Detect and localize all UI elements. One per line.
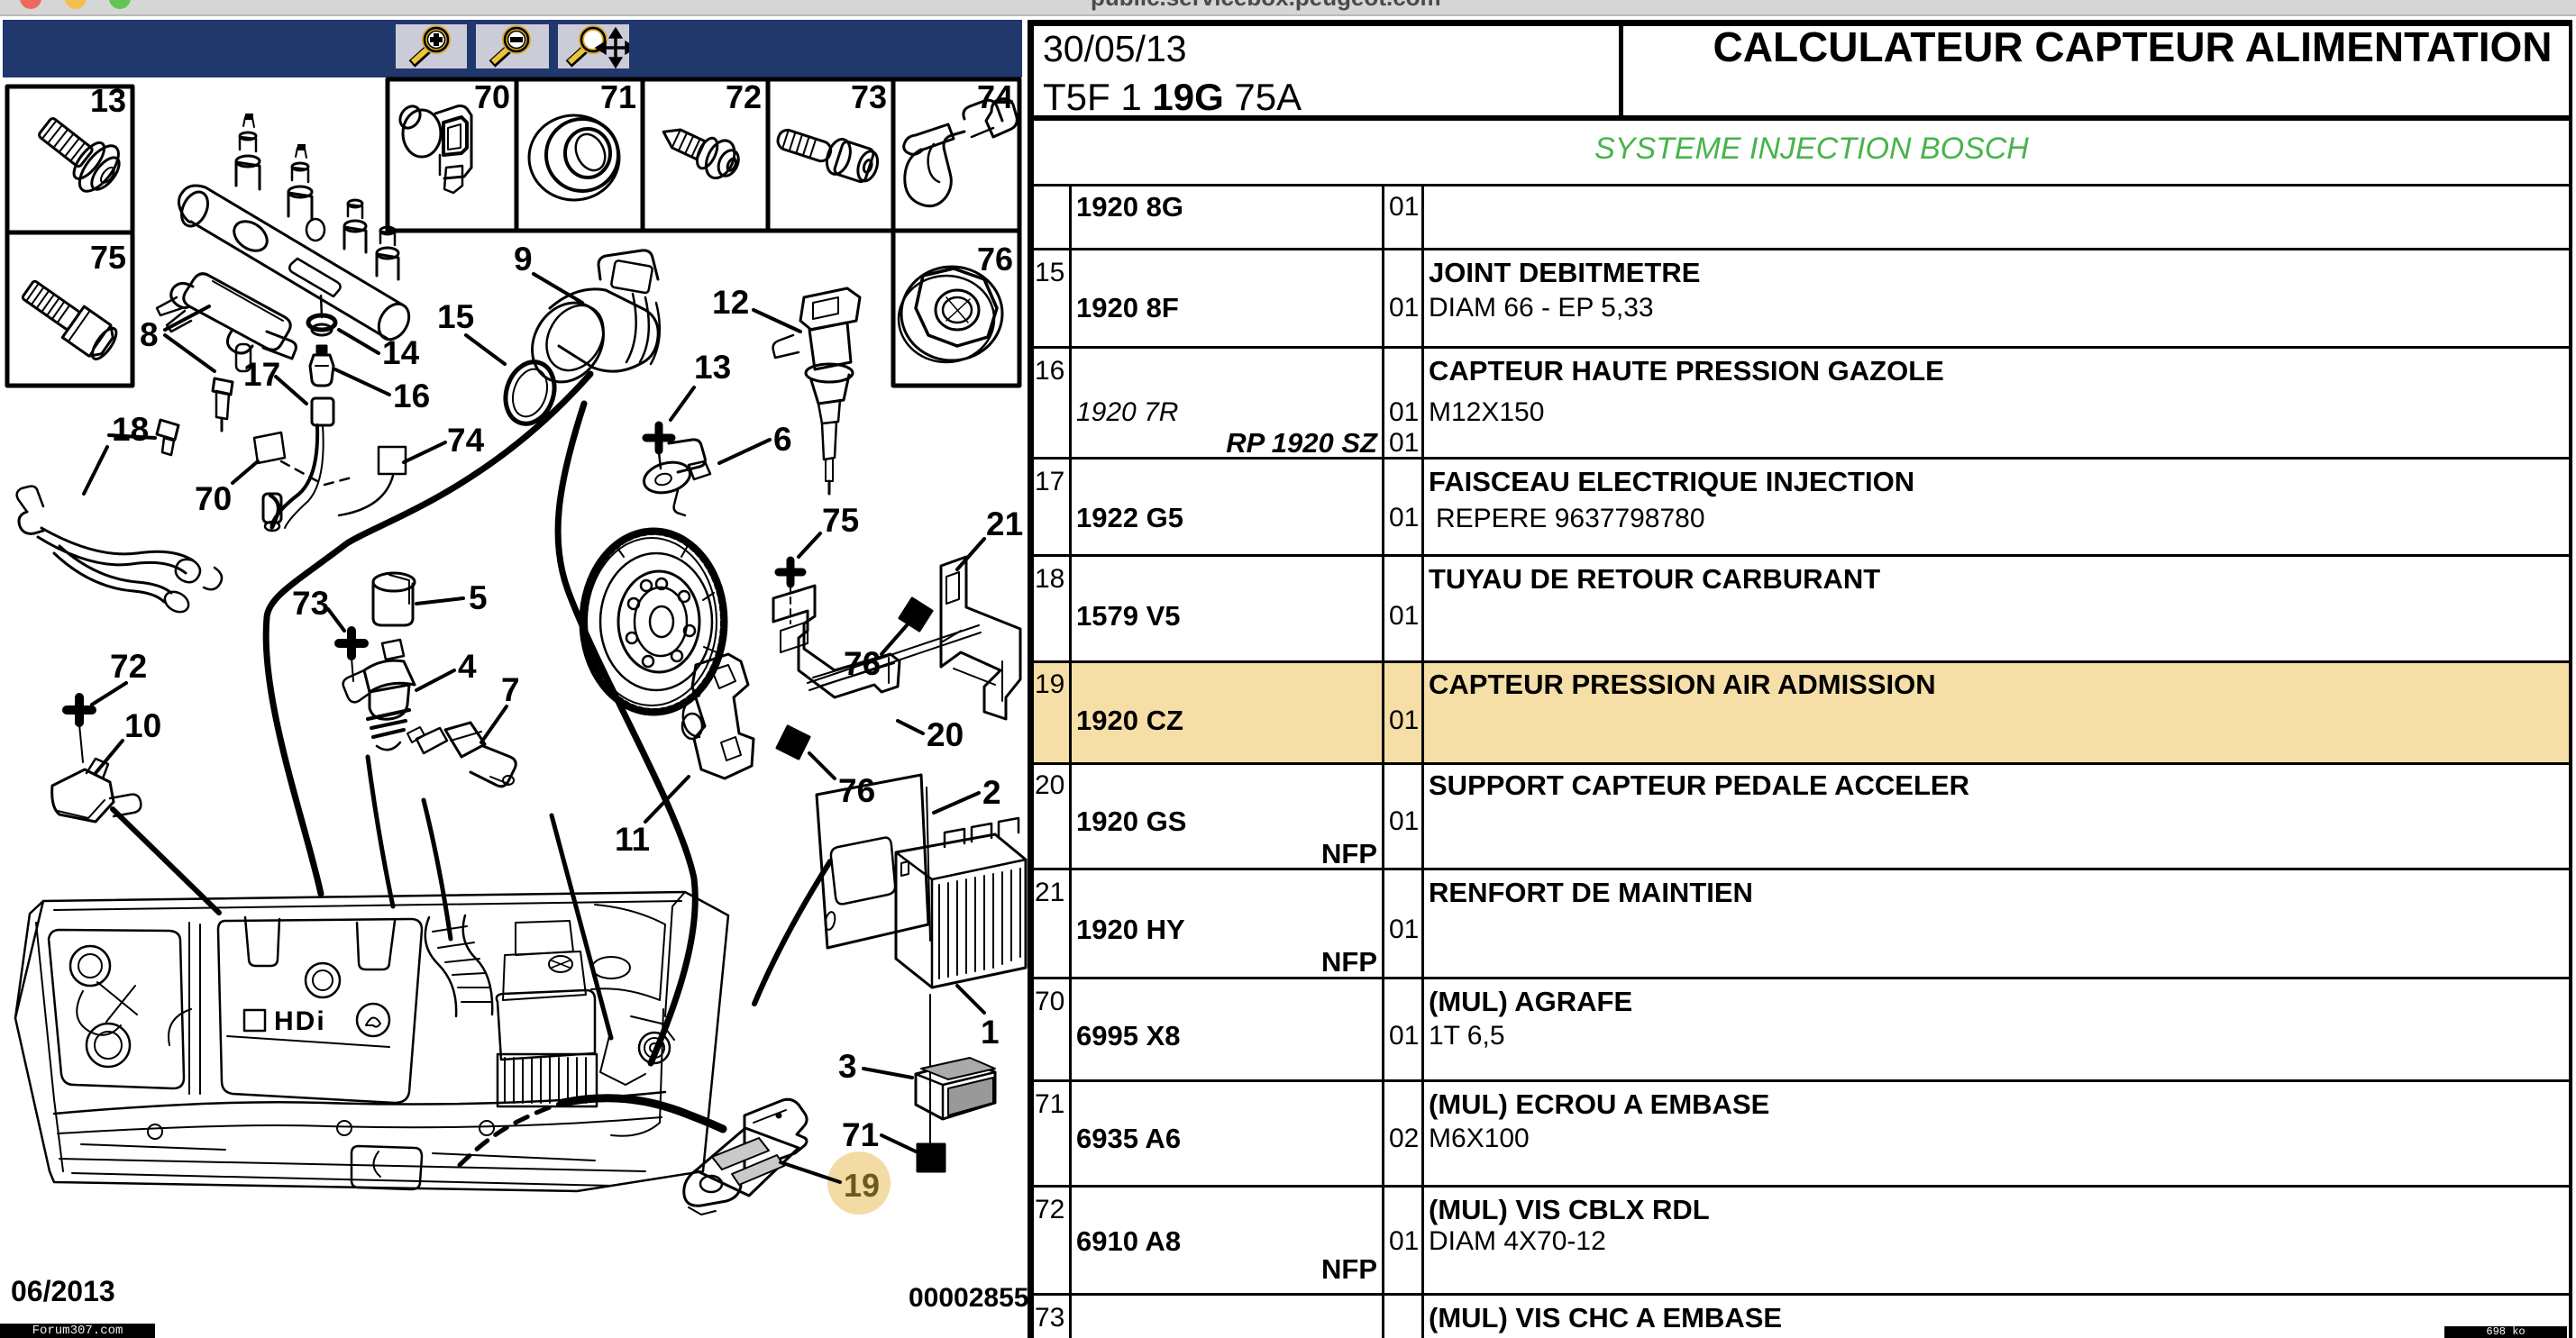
svg-text:2: 2 bbox=[982, 774, 1001, 811]
svg-text:18: 18 bbox=[112, 411, 149, 448]
svg-text:1: 1 bbox=[981, 1014, 1000, 1051]
svg-text:75: 75 bbox=[90, 239, 126, 276]
svg-text:74: 74 bbox=[447, 422, 485, 459]
svg-text:3: 3 bbox=[838, 1048, 857, 1085]
svg-text:13: 13 bbox=[694, 349, 731, 386]
svg-text:7: 7 bbox=[501, 671, 520, 708]
svg-text:72: 72 bbox=[110, 648, 147, 685]
svg-text:06/2013: 06/2013 bbox=[11, 1275, 115, 1307]
svg-text:5: 5 bbox=[469, 579, 488, 616]
svg-text:6: 6 bbox=[773, 421, 792, 458]
svg-text:15: 15 bbox=[437, 298, 474, 335]
svg-text:13: 13 bbox=[90, 82, 126, 119]
svg-text:17: 17 bbox=[243, 356, 280, 393]
svg-text:20: 20 bbox=[927, 716, 964, 753]
svg-text:19: 19 bbox=[844, 1167, 880, 1204]
svg-text:70: 70 bbox=[474, 78, 510, 115]
svg-text:14: 14 bbox=[382, 334, 420, 371]
svg-text:12: 12 bbox=[712, 284, 749, 321]
svg-text:70: 70 bbox=[195, 480, 232, 517]
svg-text:10: 10 bbox=[124, 707, 161, 744]
svg-text:73: 73 bbox=[292, 585, 329, 622]
svg-text:00002855: 00002855 bbox=[909, 1283, 1028, 1313]
svg-text:71: 71 bbox=[600, 78, 636, 115]
svg-text:8: 8 bbox=[140, 316, 159, 353]
svg-text:21: 21 bbox=[986, 505, 1023, 542]
svg-text:9: 9 bbox=[514, 241, 533, 278]
svg-text:11: 11 bbox=[615, 821, 650, 858]
svg-text:4: 4 bbox=[458, 648, 477, 685]
svg-text:74: 74 bbox=[977, 78, 1013, 115]
svg-text:71: 71 bbox=[842, 1116, 879, 1153]
svg-text:HDi: HDi bbox=[274, 1006, 326, 1036]
svg-text:72: 72 bbox=[726, 78, 762, 115]
svg-text:16: 16 bbox=[393, 378, 430, 414]
svg-text:76: 76 bbox=[977, 241, 1013, 278]
svg-text:75: 75 bbox=[822, 502, 859, 539]
svg-text:73: 73 bbox=[851, 78, 887, 115]
